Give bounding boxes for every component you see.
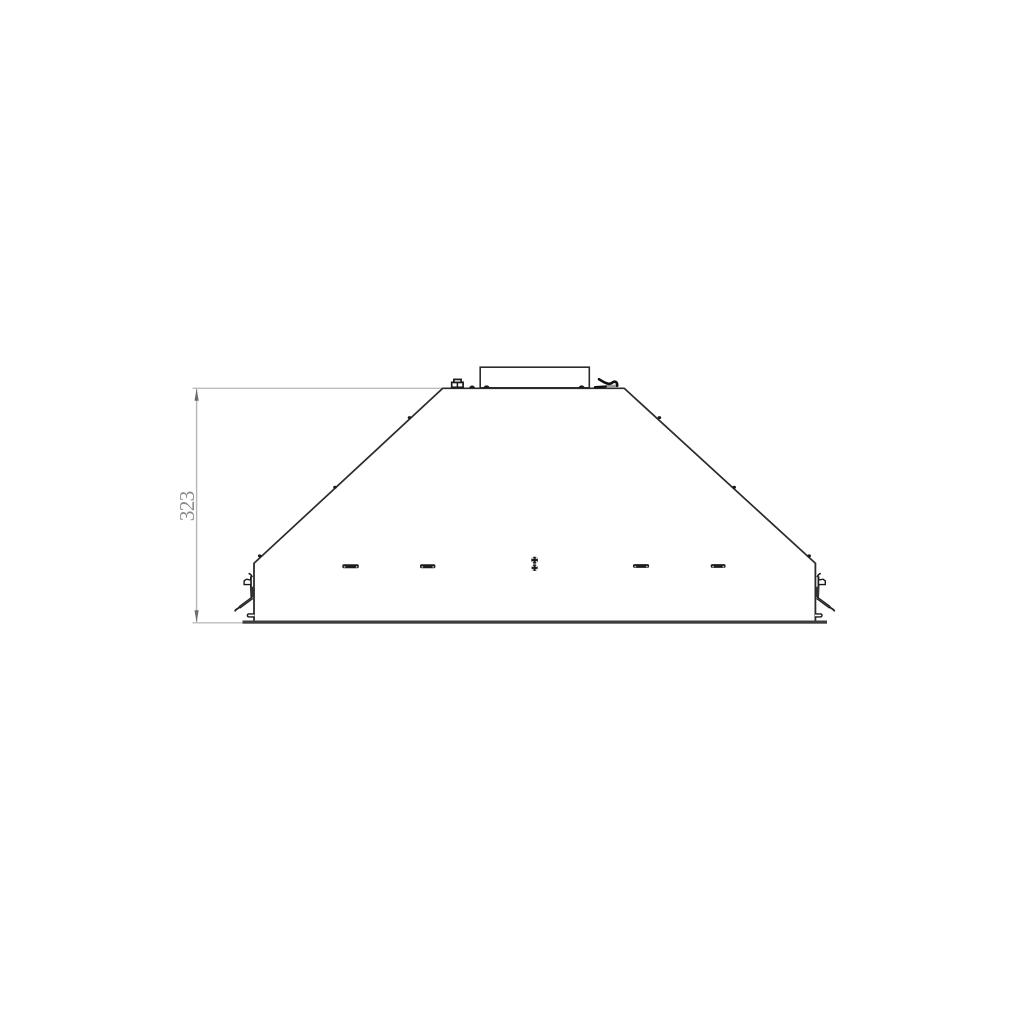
svg-text:323: 323 [175,491,199,521]
